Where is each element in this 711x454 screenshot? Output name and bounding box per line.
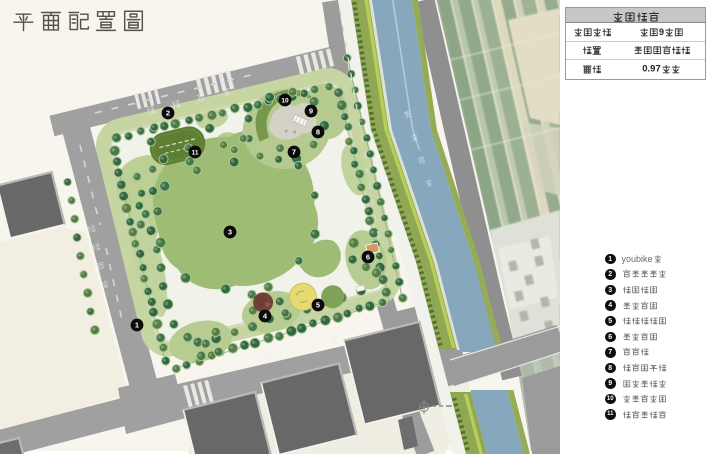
svg-text:7: 7 — [292, 148, 296, 157]
svg-text:1: 1 — [135, 321, 139, 330]
svg-text:10: 10 — [281, 98, 289, 105]
svg-text:3: 3 — [228, 228, 232, 237]
svg-text:5: 5 — [316, 301, 320, 310]
svg-text:6: 6 — [366, 253, 370, 262]
svg-text:2: 2 — [166, 109, 170, 118]
svg-text:8: 8 — [316, 128, 320, 137]
svg-text:9: 9 — [309, 107, 313, 116]
svg-text:11: 11 — [192, 150, 199, 157]
